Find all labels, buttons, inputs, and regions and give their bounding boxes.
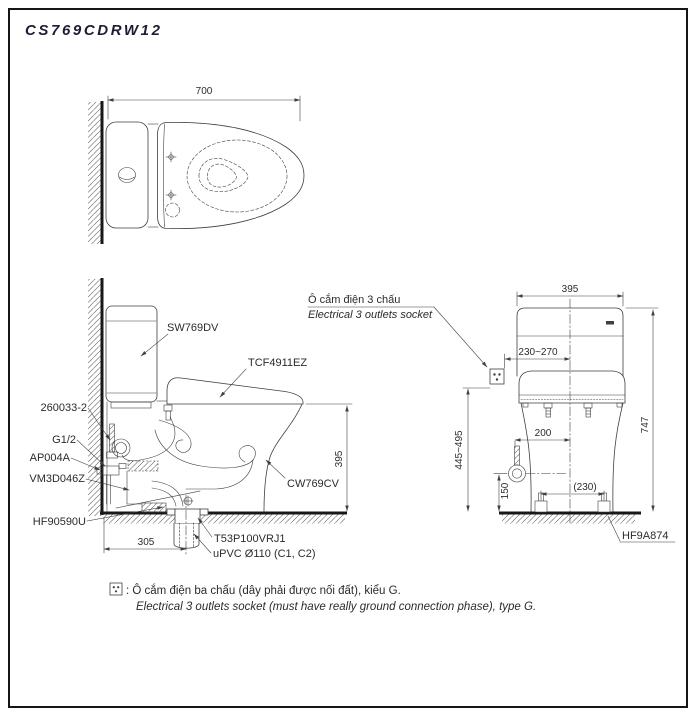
tank-side bbox=[106, 306, 157, 402]
outlet-socket bbox=[490, 369, 504, 384]
label-washlet: TCF4911EZ bbox=[248, 357, 307, 369]
tank-base bbox=[111, 402, 151, 408]
trapway bbox=[152, 420, 255, 506]
technical-drawing: 700 bbox=[0, 0, 698, 718]
dim-230p: (230) bbox=[573, 482, 596, 493]
footnote-vi: : Ô cắm điện ba chấu (dây phải được nối … bbox=[126, 584, 401, 597]
label-cistern: SW769DV bbox=[167, 322, 219, 334]
washlet-side bbox=[167, 378, 303, 404]
lid-top bbox=[158, 122, 305, 228]
dim-230-270: 230~270 bbox=[518, 347, 558, 358]
drain-assembly bbox=[167, 495, 208, 554]
socket-callout: Ô cắm điện 3 chấu Electrical 3 outlets s… bbox=[308, 293, 487, 367]
logo-mark bbox=[606, 321, 614, 325]
tank-top bbox=[106, 122, 148, 228]
floor-hatch bbox=[502, 515, 635, 524]
body-left bbox=[521, 403, 531, 512]
dim-305: 305 bbox=[138, 537, 155, 548]
dim-445-495: 445~495 bbox=[454, 430, 465, 470]
supply-hose bbox=[122, 417, 175, 461]
dim-747: 747 bbox=[640, 416, 651, 433]
label-gasket: HF90590U bbox=[33, 516, 86, 528]
floor-hatch bbox=[103, 515, 345, 524]
footnote-en: Electrical 3 outlets socket (must have r… bbox=[136, 601, 536, 613]
dim-395-rear: 395 bbox=[562, 284, 579, 295]
callout-vi: Ô cắm điện 3 chấu bbox=[308, 293, 400, 306]
supply-valve bbox=[509, 446, 568, 482]
body-right bbox=[613, 403, 623, 512]
label-connector: VM3D046Z bbox=[29, 473, 85, 485]
label-stop-valve: AP004A bbox=[30, 452, 71, 464]
nozzle bbox=[544, 403, 552, 417]
hose-connector bbox=[164, 405, 172, 420]
footnote: : Ô cắm điện ba chấu (dây phải được nối … bbox=[110, 583, 536, 613]
dim-395-side: 395 bbox=[334, 450, 345, 467]
socket-icon bbox=[110, 583, 122, 595]
nozzle bbox=[584, 403, 592, 417]
bowl-profile bbox=[264, 404, 302, 512]
label-flange: T53P100VRJ1 bbox=[214, 533, 286, 545]
top-view: 700 bbox=[88, 86, 304, 244]
label-bolt: 260033-2 bbox=[41, 402, 88, 414]
callout-leader bbox=[434, 307, 487, 367]
dim-200: 200 bbox=[535, 428, 552, 439]
bolt-cap-mark bbox=[183, 496, 193, 506]
drawing-sheet: CS769CDRW12 700 bbox=[0, 0, 698, 718]
wall-hatch bbox=[88, 102, 102, 244]
label-pipe: uPVC Ø110 (C1, C2) bbox=[213, 548, 316, 560]
label-bowl: CW769CV bbox=[287, 478, 340, 490]
label-thread: G1/2 bbox=[52, 434, 76, 446]
wall-hatch bbox=[88, 279, 102, 516]
rear-view: 395 230~270 747 445~495 200 150 (230) H bbox=[454, 284, 675, 542]
side-view: 395 305 SW769DV TCF4911EZ CW769CV 260033… bbox=[29, 278, 352, 560]
dim-150: 150 bbox=[500, 482, 511, 499]
inlet-spud bbox=[128, 461, 158, 471]
seat-rear bbox=[519, 371, 625, 403]
callout-en: Electrical 3 outlets socket bbox=[308, 309, 433, 321]
dim-700: 700 bbox=[196, 86, 213, 97]
label-cap: HF9A874 bbox=[622, 530, 668, 542]
